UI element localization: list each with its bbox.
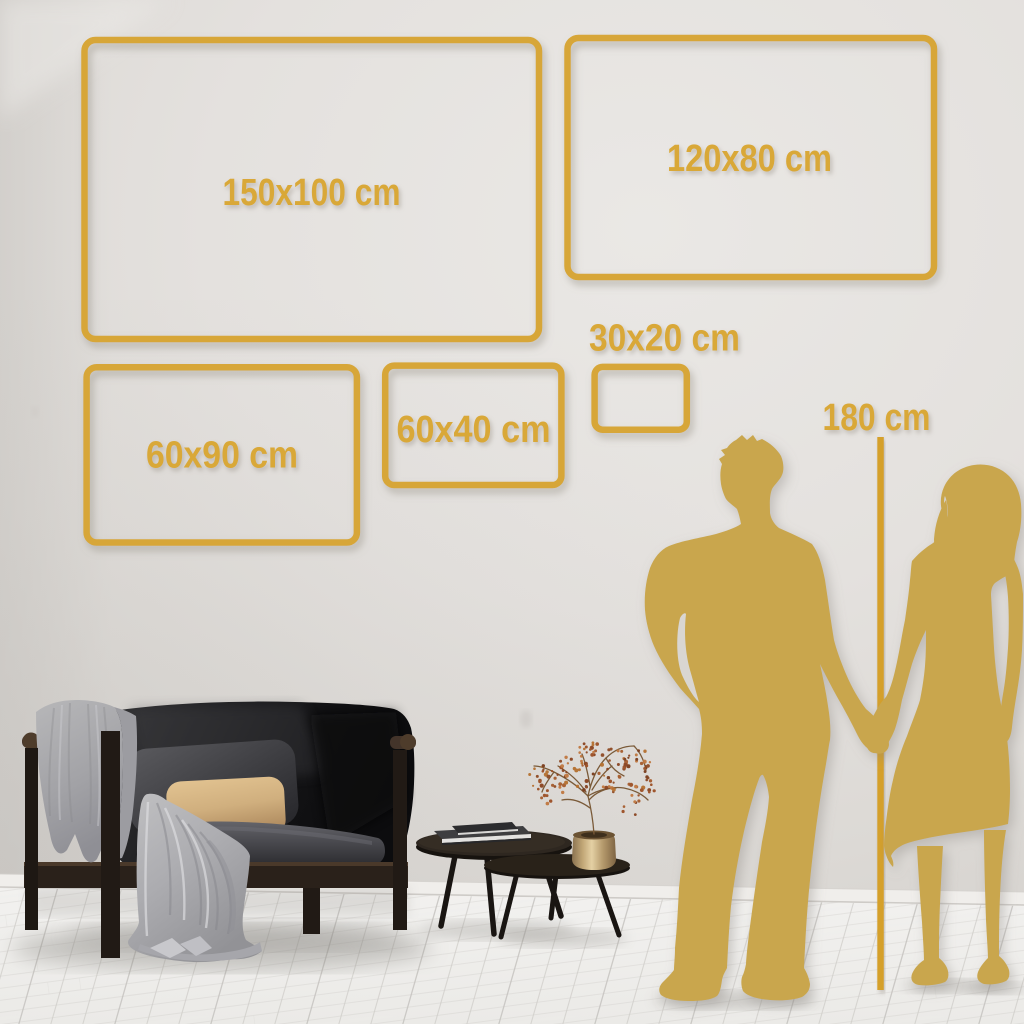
svg-text:120x80 cm: 120x80 cm: [667, 138, 832, 180]
svg-text:180 cm: 180 cm: [823, 397, 931, 439]
svg-text:30x20 cm: 30x20 cm: [589, 318, 740, 360]
svg-text:60x40 cm: 60x40 cm: [397, 409, 551, 451]
svg-text:60x90 cm: 60x90 cm: [146, 435, 298, 477]
svg-text:150x100 cm: 150x100 cm: [223, 172, 401, 214]
